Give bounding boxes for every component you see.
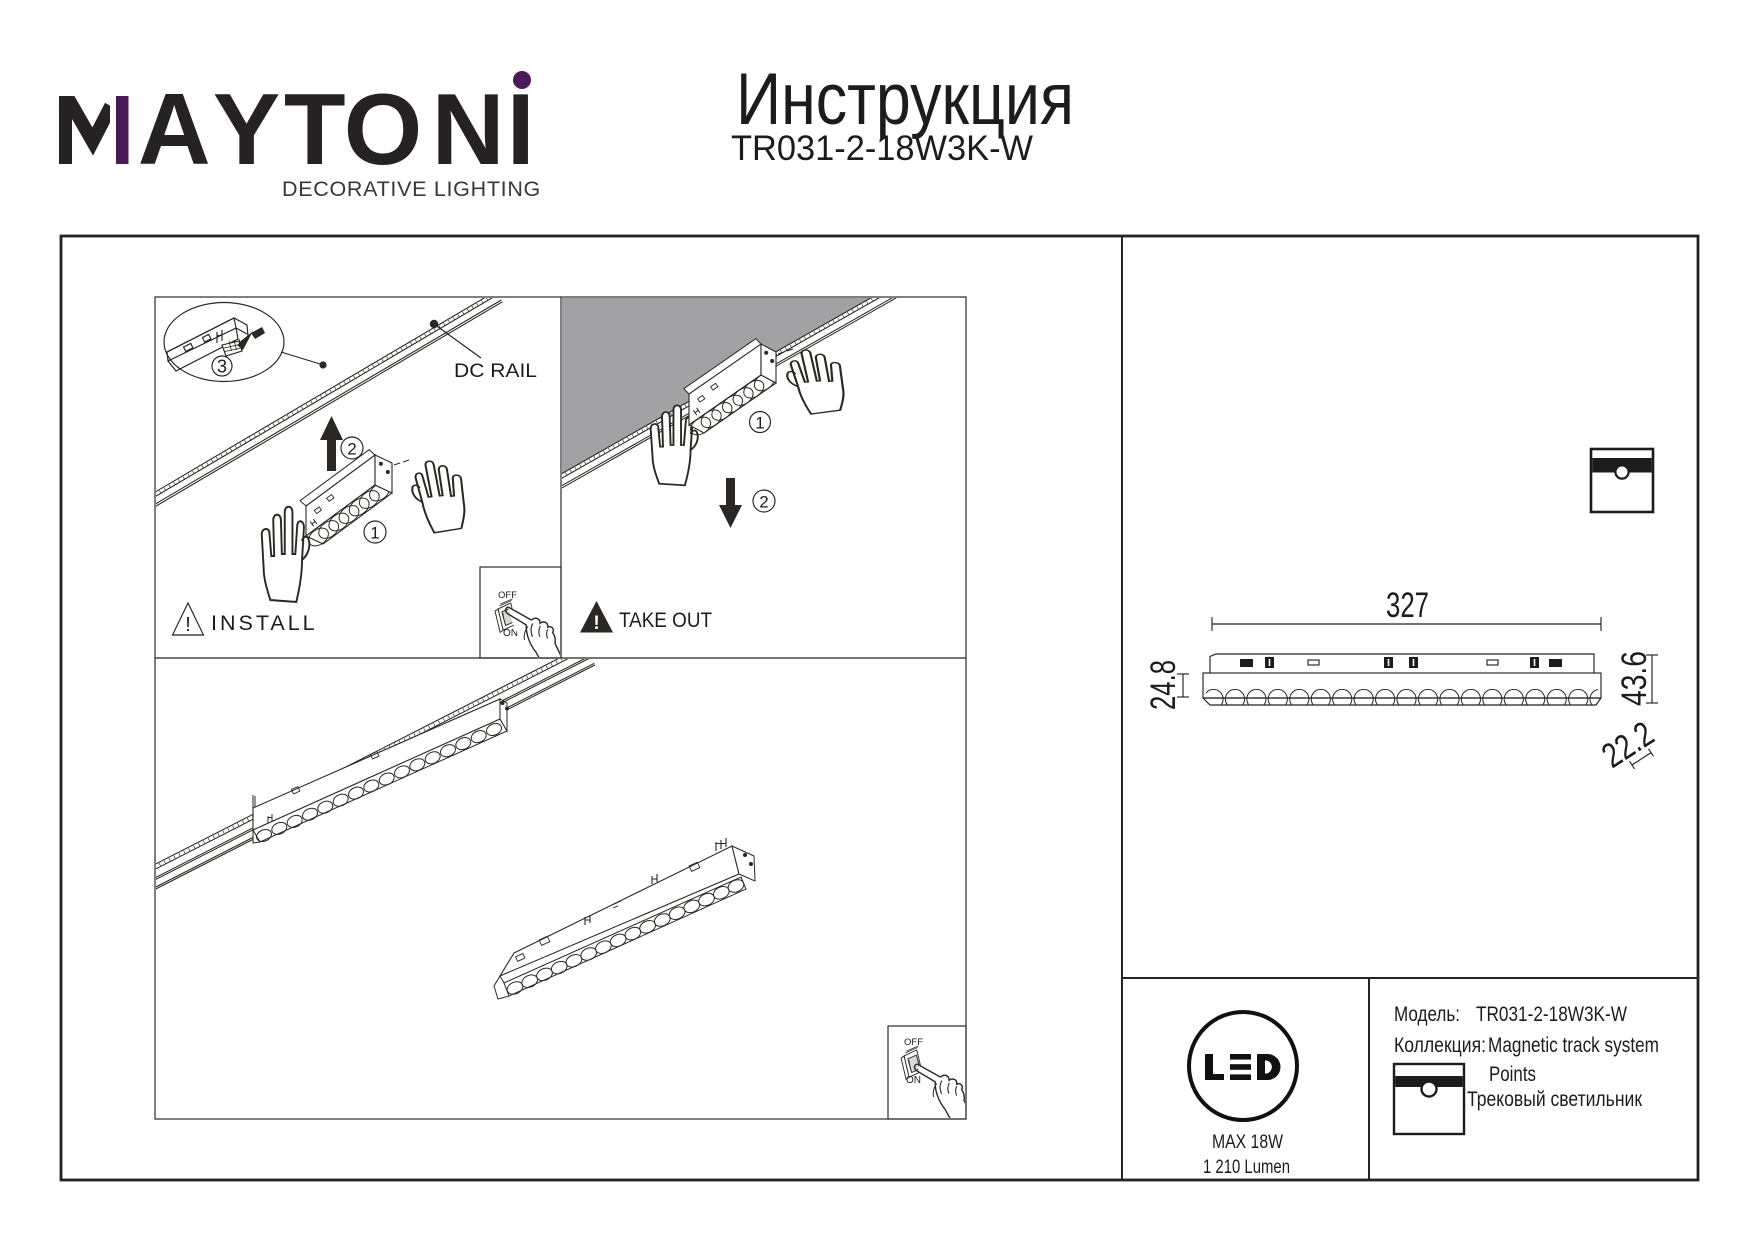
svg-text:Модель:: Модель: <box>1394 1003 1460 1026</box>
svg-text:T: T <box>284 74 346 186</box>
svg-text:3: 3 <box>217 357 227 377</box>
svg-text:DC RAIL: DC RAIL <box>454 360 537 382</box>
svg-text:I: I <box>507 74 535 186</box>
svg-text:Points: Points <box>1489 1063 1536 1086</box>
svg-text:1: 1 <box>370 524 379 543</box>
svg-text:Трековый светильник: Трековый светильник <box>1467 1088 1643 1111</box>
svg-text:Y: Y <box>213 74 280 186</box>
svg-text:OFF: OFF <box>904 1037 923 1048</box>
svg-text:ON: ON <box>906 1075 921 1086</box>
svg-text:TAKE OUT: TAKE OUT <box>619 608 712 632</box>
svg-text:24.8: 24.8 <box>1144 660 1183 710</box>
svg-text:2: 2 <box>759 493 768 512</box>
svg-text:2: 2 <box>347 440 356 459</box>
svg-text:DECORATIVE LIGHTING: DECORATIVE LIGHTING <box>282 177 541 201</box>
svg-text:Инструкция: Инструкция <box>736 59 1074 140</box>
svg-text:1 210 Lumen: 1 210 Lumen <box>1203 1156 1290 1178</box>
svg-text:!: ! <box>185 614 191 636</box>
svg-text:1: 1 <box>755 414 764 433</box>
svg-text:OFF: OFF <box>498 590 517 601</box>
svg-text:MAX 18W: MAX 18W <box>1212 1131 1283 1153</box>
svg-text:Коллекция:: Коллекция: <box>1394 1034 1486 1057</box>
svg-text:TR031-2-18W3K-W: TR031-2-18W3K-W <box>731 129 1033 168</box>
svg-text:!: ! <box>593 613 599 634</box>
svg-text:327: 327 <box>1386 586 1429 625</box>
svg-text:INSTALL: INSTALL <box>211 611 318 635</box>
svg-text:43.6: 43.6 <box>1615 651 1654 706</box>
svg-text:O: O <box>344 74 423 186</box>
svg-text:Magnetic track system: Magnetic track system <box>1488 1034 1659 1057</box>
svg-text:A: A <box>138 74 211 186</box>
svg-text:N: N <box>432 74 505 186</box>
svg-text:ON: ON <box>503 628 518 639</box>
svg-text:TR031-2-18W3K-W: TR031-2-18W3K-W <box>1476 1003 1627 1026</box>
